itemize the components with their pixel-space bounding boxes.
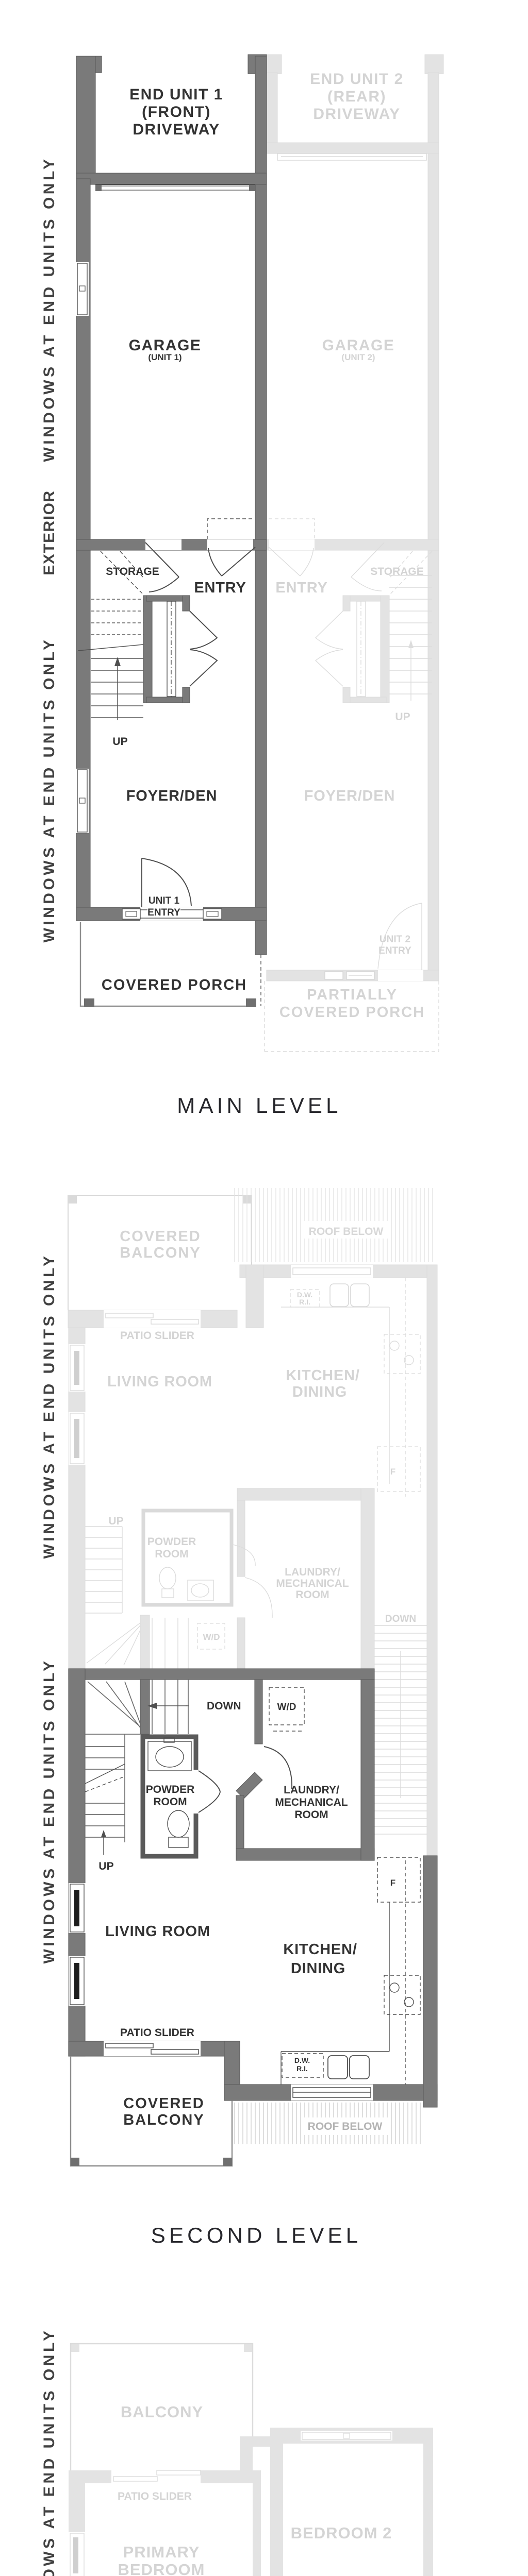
svg-text:UP: UP: [395, 711, 410, 723]
svg-text:EXTERIOR: EXTERIOR: [41, 490, 58, 575]
svg-text:F: F: [390, 1878, 395, 1888]
svg-text:ROOM: ROOM: [153, 1796, 187, 1808]
svg-text:WINDOWS AT END UNITS ONLY: WINDOWS AT END UNITS ONLY: [41, 156, 58, 462]
svg-text:UNIT 2: UNIT 2: [379, 934, 410, 945]
svg-text:BALCONY: BALCONY: [120, 1245, 201, 1261]
svg-text:GARAGE: GARAGE: [129, 337, 202, 354]
svg-text:SECOND LEVEL: SECOND LEVEL: [151, 2223, 362, 2247]
svg-text:UP: UP: [98, 1860, 113, 1872]
svg-text:BEDROOM 2: BEDROOM 2: [291, 2524, 392, 2542]
svg-text:COVERED PORCH: COVERED PORCH: [102, 977, 247, 993]
svg-text:LIVING ROOM: LIVING ROOM: [105, 1923, 210, 1940]
svg-text:KITCHEN/: KITCHEN/: [283, 1941, 357, 1958]
svg-text:PARTIALLY: PARTIALLY: [307, 987, 398, 1003]
svg-text:PATIO SLIDER: PATIO SLIDER: [120, 2027, 194, 2039]
svg-text:(FRONT): (FRONT): [142, 104, 211, 121]
svg-text:DOWN: DOWN: [385, 1614, 416, 1624]
svg-text:WINDOWS AT END UNITS ONLY: WINDOWS AT END UNITS ONLY: [41, 2328, 58, 2576]
svg-text:ROOM: ROOM: [295, 1589, 329, 1601]
svg-text:KITCHEN/: KITCHEN/: [286, 1367, 359, 1384]
svg-text:WINDOWS AT END UNITS ONLY: WINDOWS AT END UNITS ONLY: [41, 1253, 58, 1558]
svg-text:LIVING ROOM: LIVING ROOM: [107, 1374, 212, 1390]
svg-text:R.I.: R.I.: [299, 1298, 310, 1306]
svg-text:PATIO SLIDER: PATIO SLIDER: [120, 1330, 194, 1342]
svg-text:FOYER/DEN: FOYER/DEN: [126, 788, 217, 804]
svg-text:PATIO SLIDER: PATIO SLIDER: [118, 2490, 192, 2502]
svg-text:FOYER/DEN: FOYER/DEN: [304, 788, 395, 804]
svg-text:BEDROOM: BEDROOM: [118, 2561, 205, 2576]
svg-text:DRIVEWAY: DRIVEWAY: [133, 121, 220, 138]
svg-text:MECHANICAL: MECHANICAL: [276, 1578, 349, 1589]
svg-text:UNIT 1: UNIT 1: [148, 895, 180, 906]
svg-text:ENTRY: ENTRY: [194, 580, 246, 596]
svg-text:(UNIT 1): (UNIT 1): [148, 352, 181, 362]
svg-text:GARAGE: GARAGE: [322, 337, 395, 354]
svg-text:BALCONY: BALCONY: [123, 2112, 204, 2128]
svg-text:(UNIT 2): (UNIT 2): [341, 352, 375, 362]
svg-text:DOWN: DOWN: [207, 1700, 241, 1712]
svg-text:COVERED PORCH: COVERED PORCH: [279, 1004, 425, 1021]
svg-text:UP: UP: [108, 1515, 123, 1527]
svg-text:LAUNDRY/: LAUNDRY/: [285, 1566, 340, 1578]
svg-text:BALCONY: BALCONY: [121, 2403, 203, 2421]
svg-text:F: F: [390, 1467, 395, 1477]
svg-text:ROOF BELOW: ROOF BELOW: [308, 2121, 383, 2132]
svg-text:ROOF BELOW: ROOF BELOW: [309, 1226, 384, 1238]
svg-text:ROOM: ROOM: [155, 1548, 188, 1560]
svg-text:DINING: DINING: [291, 1960, 345, 1977]
svg-text:UP: UP: [112, 736, 127, 748]
svg-text:COVERED: COVERED: [123, 2095, 204, 2112]
svg-text:LAUNDRY/: LAUNDRY/: [284, 1784, 339, 1796]
svg-text:COVERED: COVERED: [120, 1228, 201, 1245]
svg-text:ENTRY: ENTRY: [147, 907, 180, 918]
svg-text:(REAR): (REAR): [327, 88, 386, 105]
svg-text:STORAGE: STORAGE: [106, 566, 159, 578]
svg-text:END UNIT 2: END UNIT 2: [310, 71, 404, 88]
svg-text:DRIVEWAY: DRIVEWAY: [313, 106, 400, 123]
svg-text:W/D: W/D: [277, 1702, 296, 1713]
svg-text:ENTRY: ENTRY: [275, 580, 327, 596]
svg-text:ENTRY: ENTRY: [378, 945, 411, 956]
svg-text:POWDER: POWDER: [147, 1536, 196, 1548]
svg-text:D.W.: D.W.: [294, 2056, 310, 2064]
svg-text:WINDOWS AT END UNITS ONLY: WINDOWS AT END UNITS ONLY: [41, 1658, 58, 1963]
svg-text:WINDOWS AT END UNITS ONLY: WINDOWS AT END UNITS ONLY: [41, 637, 58, 942]
svg-text:MECHANICAL: MECHANICAL: [275, 1797, 348, 1808]
svg-text:W/D: W/D: [203, 1632, 220, 1642]
svg-text:MAIN LEVEL: MAIN LEVEL: [177, 1093, 341, 1117]
svg-text:STORAGE: STORAGE: [370, 566, 423, 578]
svg-text:DINING: DINING: [292, 1384, 347, 1400]
svg-text:ROOM: ROOM: [294, 1809, 328, 1821]
svg-text:POWDER: POWDER: [146, 1784, 195, 1795]
svg-text:END UNIT 1: END UNIT 1: [129, 86, 223, 103]
svg-text:R.I.: R.I.: [296, 2064, 308, 2073]
svg-text:PRIMARY: PRIMARY: [123, 2543, 200, 2561]
